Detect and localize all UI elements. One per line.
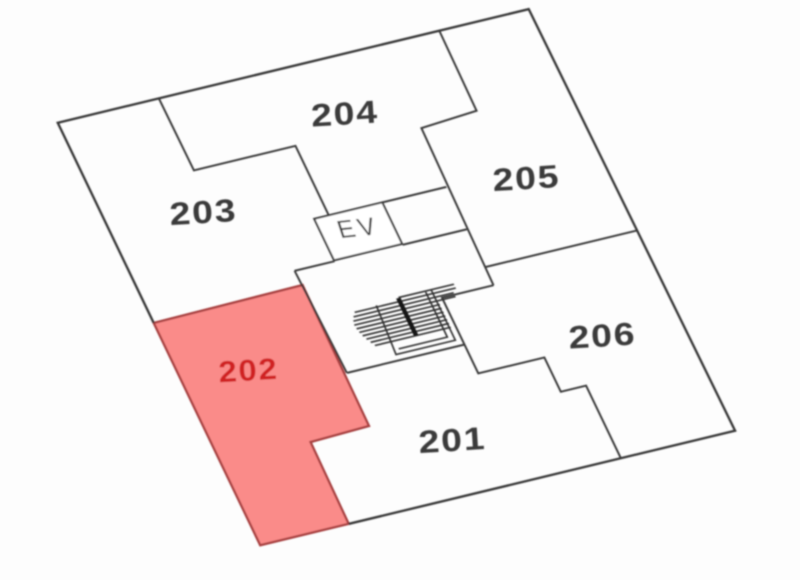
svg-text:203: 203 xyxy=(168,193,238,233)
svg-text:201: 201 xyxy=(417,421,487,461)
svg-text:EV: EV xyxy=(334,213,384,244)
svg-text:205: 205 xyxy=(491,159,561,199)
svg-text:204: 204 xyxy=(310,94,380,134)
svg-text:206: 206 xyxy=(567,316,637,356)
svg-text:202: 202 xyxy=(217,351,279,389)
